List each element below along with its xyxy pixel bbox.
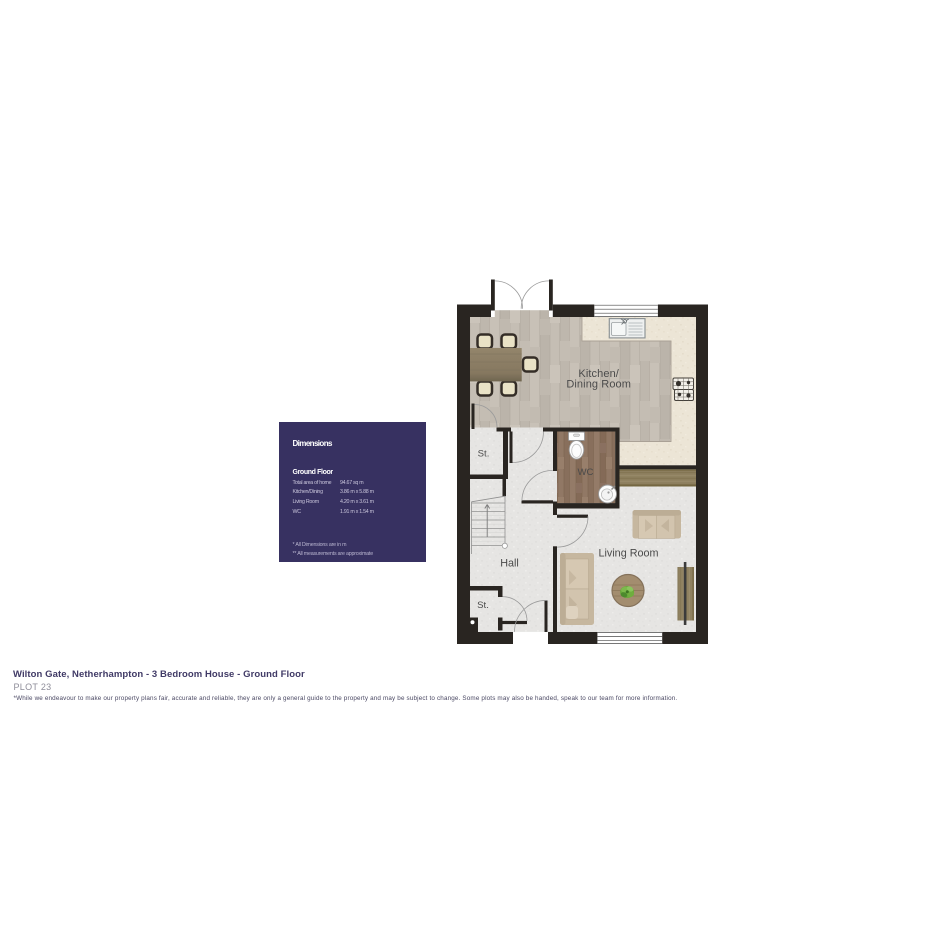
- svg-text:Dining Room: Dining Room: [566, 379, 631, 391]
- svg-text:St.: St.: [477, 600, 489, 611]
- svg-text:Hall: Hall: [500, 557, 519, 569]
- svg-text:St.: St.: [478, 448, 490, 459]
- svg-text:Living Room: Living Room: [598, 547, 658, 559]
- svg-text:WC: WC: [578, 467, 594, 478]
